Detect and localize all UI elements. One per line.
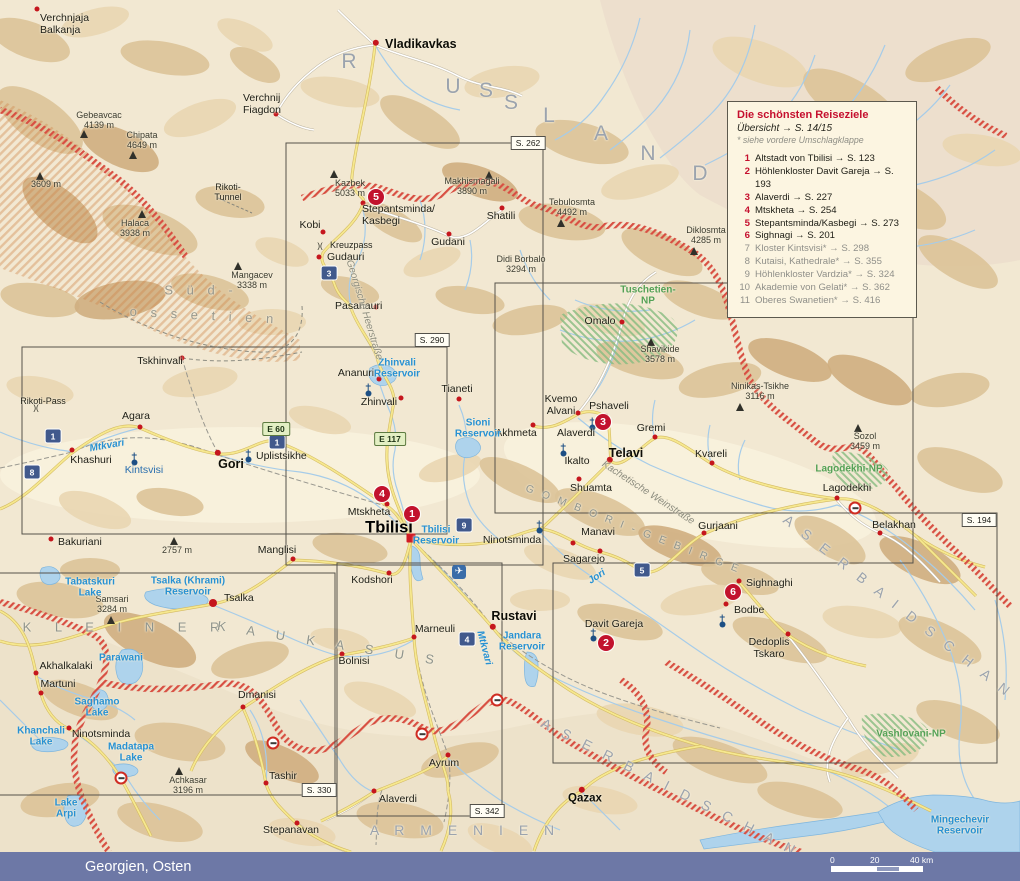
monastery-icon — [244, 450, 253, 463]
town-dot — [317, 255, 322, 260]
town-dot — [620, 320, 625, 325]
town-dot — [49, 537, 54, 542]
map-label: S — [479, 79, 493, 103]
scale-bar: 0 20 40 km — [828, 852, 958, 881]
legend-item-number: 9 — [737, 269, 750, 282]
map-label: Madatapa Lake — [108, 742, 154, 765]
legend-item-number: 5 — [737, 218, 750, 231]
map-label: Tsalka — [224, 593, 254, 605]
road-shield: 3 — [322, 267, 337, 280]
map-label: Martuni — [40, 679, 75, 691]
map-label: K A U K A S U S — [216, 619, 444, 669]
peak-triangle-icon — [557, 219, 565, 227]
legend-item-text: Sighnagi → S. 201 — [755, 230, 835, 243]
map-label: Verchnij Fiagdon — [243, 93, 281, 117]
map-label: Tabatskuri Lake — [65, 577, 115, 600]
legend-item-text: Höhlenkloster Vardzia* → S. 324 — [755, 269, 895, 282]
peak-triangle-icon — [330, 170, 338, 178]
map-label: Sighnaghi — [746, 578, 793, 590]
map-label: Tuschetien- NP — [620, 285, 675, 308]
map-label: Rustavi — [491, 609, 536, 623]
sight-marker: 5 — [368, 189, 384, 205]
town-dot — [241, 705, 246, 710]
legend-item: 1 Altstadt von Tbilisi → S. 123 — [737, 153, 907, 166]
map-label: Didi Borbalo 3294 m — [496, 254, 545, 274]
map-label: Vashlovani-NP — [876, 728, 945, 739]
page-ref: S. 290 — [415, 333, 450, 347]
legend-item: 10 Akademie von Gelati* → S. 362 — [737, 282, 907, 295]
map-label: o s s e t i e n — [129, 305, 278, 327]
map-label: Lake Arpi — [55, 798, 78, 821]
road-shield: 4 — [460, 633, 475, 646]
no-entry-icon — [416, 728, 429, 741]
legend-item: 5 Stepantsminda/Kasbegi → S. 273 — [737, 218, 907, 231]
legend-item-text: Mtskheta → S. 254 — [755, 205, 837, 218]
map-label: 3609 m — [31, 179, 61, 189]
legend-item-number: 8 — [737, 256, 750, 269]
town-dot — [138, 425, 143, 430]
map-label: Tskhinvali — [137, 356, 183, 368]
map-label: Uplistsikhe — [256, 451, 307, 463]
map-label: Mtkvari — [474, 630, 494, 667]
monastery-icon — [535, 521, 544, 534]
map-label: Mtskheta — [348, 507, 391, 519]
legend-item-number: 1 — [737, 153, 750, 166]
map-label: Tebulosmta 4492 m — [549, 197, 595, 217]
map-label: Gori — [218, 457, 244, 471]
page-ref: S. 330 — [302, 783, 337, 797]
legend-item: 7 Kloster Kintsvisi* → S. 298 — [737, 243, 907, 256]
map-label: Kazbek 5033 m — [335, 178, 365, 198]
map-label: N — [640, 142, 655, 166]
map-label: Ananuri — [338, 368, 374, 380]
map-label: Jandara Reservoir — [499, 631, 545, 654]
scale-tick-0: 0 — [830, 855, 835, 865]
page-ref: S. 194 — [962, 513, 997, 527]
legend-item: 11 Oberes Swanetien* → S. 416 — [737, 295, 907, 308]
legend-note: * siehe vordere Umschlagklappe — [737, 135, 907, 145]
legend-title: Die schönsten Reiseziele — [737, 109, 907, 121]
scale-bar-graphic — [831, 866, 923, 872]
map-label: Zhinvali Reservoir — [374, 358, 420, 381]
town-dot — [215, 450, 221, 456]
town-dot — [35, 7, 40, 12]
town-dot — [571, 541, 576, 546]
scale-tick-40: 40 km — [910, 855, 933, 865]
map-label: Khashuri — [70, 455, 111, 467]
town-dot — [34, 671, 39, 676]
map-label: Kvareli — [695, 449, 727, 461]
page-ref: S. 262 — [511, 136, 546, 150]
map-label: Bodbe — [734, 605, 764, 617]
scale-tick-20: 20 — [870, 855, 879, 865]
town-dot — [70, 448, 75, 453]
map-label: Kintsvisi — [125, 465, 164, 477]
map-label: Omalo — [585, 316, 616, 328]
legend-box: Die schönsten Reiseziele Übersicht → S. … — [727, 101, 917, 318]
town-dot — [457, 397, 462, 402]
legend-item: 3 Alaverdi → S. 227 — [737, 192, 907, 205]
legend-item-number: 7 — [737, 243, 750, 256]
map-label: Alaverdi — [379, 794, 417, 806]
map-label: Kvemo Alvani — [545, 394, 578, 418]
map-label: 2757 m — [162, 545, 192, 555]
map-label: Ninotsminda — [483, 535, 541, 547]
map-label: Kreuzpass — [330, 240, 373, 250]
sight-marker: 1 — [404, 506, 420, 522]
map-label: Sozol 3459 m — [850, 431, 880, 451]
map-label: )( — [317, 241, 322, 250]
map-label: Agara — [122, 411, 150, 423]
legend-item-number: 3 — [737, 192, 750, 205]
map-label: Shuamta — [570, 483, 612, 495]
peak-triangle-icon — [80, 130, 88, 138]
map-label: Rikoti- Tunnel — [214, 182, 241, 202]
map-label: U — [445, 75, 460, 99]
map-label: A R M E N I E N — [370, 823, 560, 839]
peak-triangle-icon — [175, 767, 183, 775]
map-label: Kodshori — [351, 575, 392, 587]
map-page: 1813945E 60E 117✈ Verchnjaja BalkanjaVer… — [0, 0, 1020, 881]
town-dot — [653, 435, 658, 440]
legend-item-number: 11 — [737, 295, 750, 308]
legend-item-number: 2 — [737, 166, 750, 192]
map-label: A — [594, 122, 608, 146]
peak-triangle-icon — [234, 262, 242, 270]
legend-item-text: Kutaisi, Kathedrale* → S. 355 — [755, 256, 882, 269]
no-entry-icon — [849, 502, 862, 515]
legend-item-number: 4 — [737, 205, 750, 218]
road-shield: 5 — [635, 564, 650, 577]
legend-item: 6 Sighnagi → S. 201 — [737, 230, 907, 243]
legend-item: 8 Kutaisi, Kathedrale* → S. 355 — [737, 256, 907, 269]
sight-marker: 4 — [374, 486, 390, 502]
map-label: Pshaveli — [589, 401, 629, 413]
map-label: Dmanisi — [238, 690, 276, 702]
town-dot — [291, 557, 296, 562]
map-label: Tbilisi Reservoir — [413, 525, 459, 548]
map-label: Qazax — [568, 793, 602, 806]
map-label: Lagodekhi — [823, 483, 871, 495]
map-label: D — [692, 162, 707, 186]
map-label: Tashir — [269, 771, 297, 783]
road-shield: ✈ — [452, 565, 466, 579]
map-label: Rikoti-Pass — [20, 396, 66, 406]
map-label: Gremi — [637, 423, 666, 435]
map-label: A S E R B A I D S C H A N — [780, 512, 1016, 702]
map-label: Shatili — [487, 211, 516, 223]
legend-item-text: Altstadt von Tbilisi → S. 123 — [755, 153, 875, 166]
legend-item-text: Akademie von Gelati* → S. 362 — [755, 282, 890, 295]
map-label: Akhalkalaki — [39, 661, 92, 673]
map-label: Shavikide 3578 m — [640, 344, 679, 364]
map-label: Diklosmta 4285 m — [686, 225, 726, 245]
road-shield: E 117 — [374, 432, 406, 446]
map-label: Jori — [586, 567, 608, 586]
map-label: Stepanavan — [263, 825, 319, 837]
map-label: Sagarejo — [563, 554, 605, 566]
map-label: Lagodekhi-NP — [815, 463, 882, 474]
sight-marker: 6 — [725, 584, 741, 600]
map-label: Stepantsminda/ Kasbegi — [362, 204, 435, 228]
legend-item-text: Alaverdi → S. 227 — [755, 192, 832, 205]
town-dot — [373, 40, 379, 46]
sight-marker: 2 — [598, 635, 614, 651]
map-label: Davit Gareja — [585, 619, 643, 631]
town-dot — [264, 781, 269, 786]
town-dot — [577, 477, 582, 482]
town-dot — [372, 789, 377, 794]
map-label: Tbilisi — [365, 519, 413, 538]
map-label: Tsalka (Khrami) Reservoir — [151, 576, 225, 599]
map-label: Akhmeta — [495, 428, 536, 440]
map-label: Ninotsminda — [72, 729, 130, 741]
map-label: Chipata 4649 m — [126, 130, 157, 150]
map-label: Bakuriani — [58, 537, 102, 549]
town-dot — [321, 230, 326, 235]
legend-item-number: 6 — [737, 230, 750, 243]
map-label: Belakhan — [872, 520, 916, 532]
legend-subtitle: Übersicht → S. 14/15 — [737, 123, 907, 134]
peak-triangle-icon — [170, 537, 178, 545]
no-entry-icon — [491, 694, 504, 707]
map-label: R — [341, 50, 356, 74]
monastery-icon — [364, 384, 373, 397]
peak-triangle-icon — [736, 403, 744, 411]
map-label: Gurjaani — [698, 521, 738, 533]
map-label: Makhismagali 3890 m — [444, 176, 499, 196]
map-label: )( — [33, 403, 38, 412]
map-label: Zhinvali — [361, 397, 397, 409]
page-ref: S. 342 — [470, 804, 505, 818]
map-label: Mingechevir Reservoir — [931, 815, 989, 838]
map-label: Ninikas-Tsikhe 3116 m — [731, 381, 789, 401]
road-shield: 8 — [25, 466, 40, 479]
sight-marker: 3 — [595, 414, 611, 430]
town-dot — [39, 691, 44, 696]
map-label: Tianeti — [441, 384, 472, 396]
town-dot — [835, 496, 840, 501]
map-label: Alaverdi — [557, 428, 595, 440]
legend-item-text: Kloster Kintsvisi* → S. 298 — [755, 243, 869, 256]
map-label: K L E I N E R — [23, 621, 230, 636]
map-label: Gudani — [431, 237, 465, 249]
town-dot — [490, 624, 496, 630]
footer-bar: Georgien, Osten 0 20 40 km — [0, 852, 1020, 881]
peak-triangle-icon — [138, 210, 146, 218]
town-dot — [67, 726, 72, 731]
legend-item: 2 Höhlenkloster Davit Gareja → S. 193 — [737, 166, 907, 192]
road-shield: 1 — [46, 430, 61, 443]
map-label: Ayrum — [429, 758, 459, 770]
map-label: Halaca 3938 m — [120, 218, 150, 238]
map-label: Verchnjaja Balkanja — [40, 13, 89, 37]
map-label: Achkasar 3196 m — [169, 775, 207, 795]
legend-list: 1 Altstadt von Tbilisi → S. 123 2 Höhlen… — [737, 153, 907, 308]
map-label: Telavi — [609, 446, 644, 460]
no-entry-icon — [115, 772, 128, 785]
map-label: S ü d - — [164, 284, 237, 299]
peak-triangle-icon — [690, 247, 698, 255]
map-label: L — [543, 104, 555, 128]
map-label: Gebeavcac 4139 m — [76, 110, 122, 130]
map-label: Marneuli — [415, 624, 455, 636]
legend-item: 9 Höhlenkloster Vardzia* → S. 324 — [737, 269, 907, 282]
town-dot — [724, 602, 729, 607]
map-label: S — [504, 91, 518, 115]
map-label: Manglisi — [258, 545, 297, 557]
town-dot — [737, 579, 742, 584]
map-label: Ikalto — [564, 456, 589, 468]
monastery-icon — [718, 615, 727, 628]
no-entry-icon — [267, 737, 280, 750]
map-label: Mtkvari — [89, 437, 125, 454]
legend-item-number: 10 — [737, 282, 750, 295]
legend-item: 4 Mtskheta → S. 254 — [737, 205, 907, 218]
map-title: Georgien, Osten — [85, 859, 191, 875]
town-dot — [710, 461, 715, 466]
legend-item-text: Oberes Swanetien* → S. 416 — [755, 295, 880, 308]
road-shield: 1 — [270, 436, 285, 449]
map-label: Bolnisi — [339, 656, 370, 668]
map-label: Dedoplis Tskaro — [749, 637, 790, 661]
map-label: Manavi — [581, 527, 615, 539]
legend-item-text: Stepantsminda/Kasbegi → S. 273 — [755, 218, 899, 231]
map-label: Sioni Reservoir — [455, 418, 501, 441]
map-label: Saghamo Lake — [74, 697, 119, 720]
town-dot — [209, 599, 217, 607]
map-label: Vladikavkas — [385, 37, 457, 51]
map-label: A S E R B A I D S C H A N — [538, 716, 801, 861]
map-label: Parawani — [99, 652, 143, 663]
town-dot — [399, 396, 404, 401]
peak-triangle-icon — [129, 151, 137, 159]
map-label: Kobi — [299, 220, 320, 232]
map-label: Khanchali Lake — [17, 726, 65, 749]
road-shield: E 60 — [262, 422, 290, 436]
legend-item-text: Höhlenkloster Davit Gareja → S. 193 — [755, 166, 907, 192]
